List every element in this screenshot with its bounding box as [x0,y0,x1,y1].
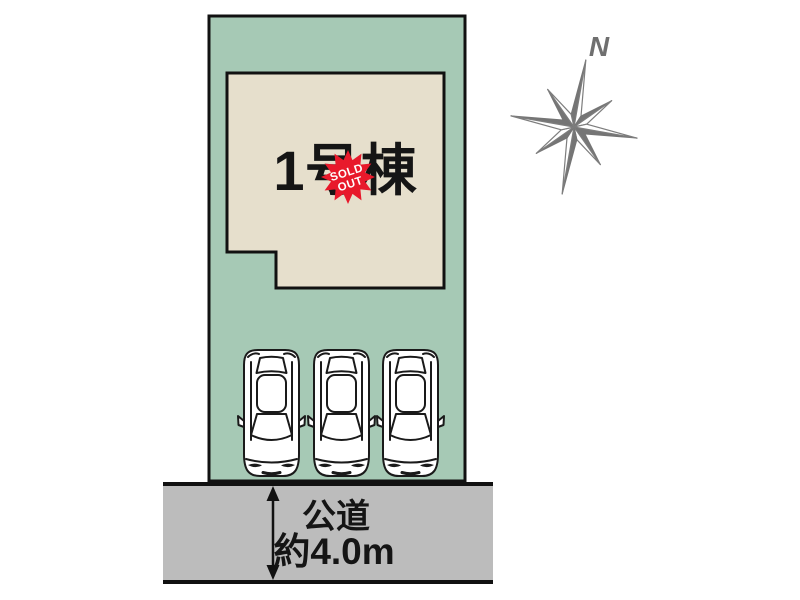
parked-car-2 [308,350,375,476]
compass-rose-icon [499,49,649,205]
parked-car-3 [377,350,444,476]
road-width-label: 約4.0m [273,531,394,572]
parked-car-1 [238,350,305,476]
compass-north-label: N [589,31,610,62]
site-plan-diagram: 1号棟 SOLD OUT 公道 約4.0m [0,0,800,600]
